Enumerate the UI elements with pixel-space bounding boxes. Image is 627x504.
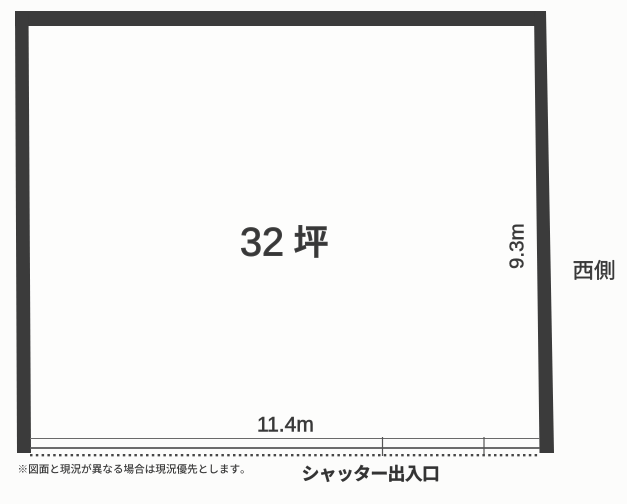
svg-text:9.3m: 9.3m [506,223,529,269]
svg-text:32: 32 [240,221,284,265]
svg-text:11.4m: 11.4m [257,413,314,436]
